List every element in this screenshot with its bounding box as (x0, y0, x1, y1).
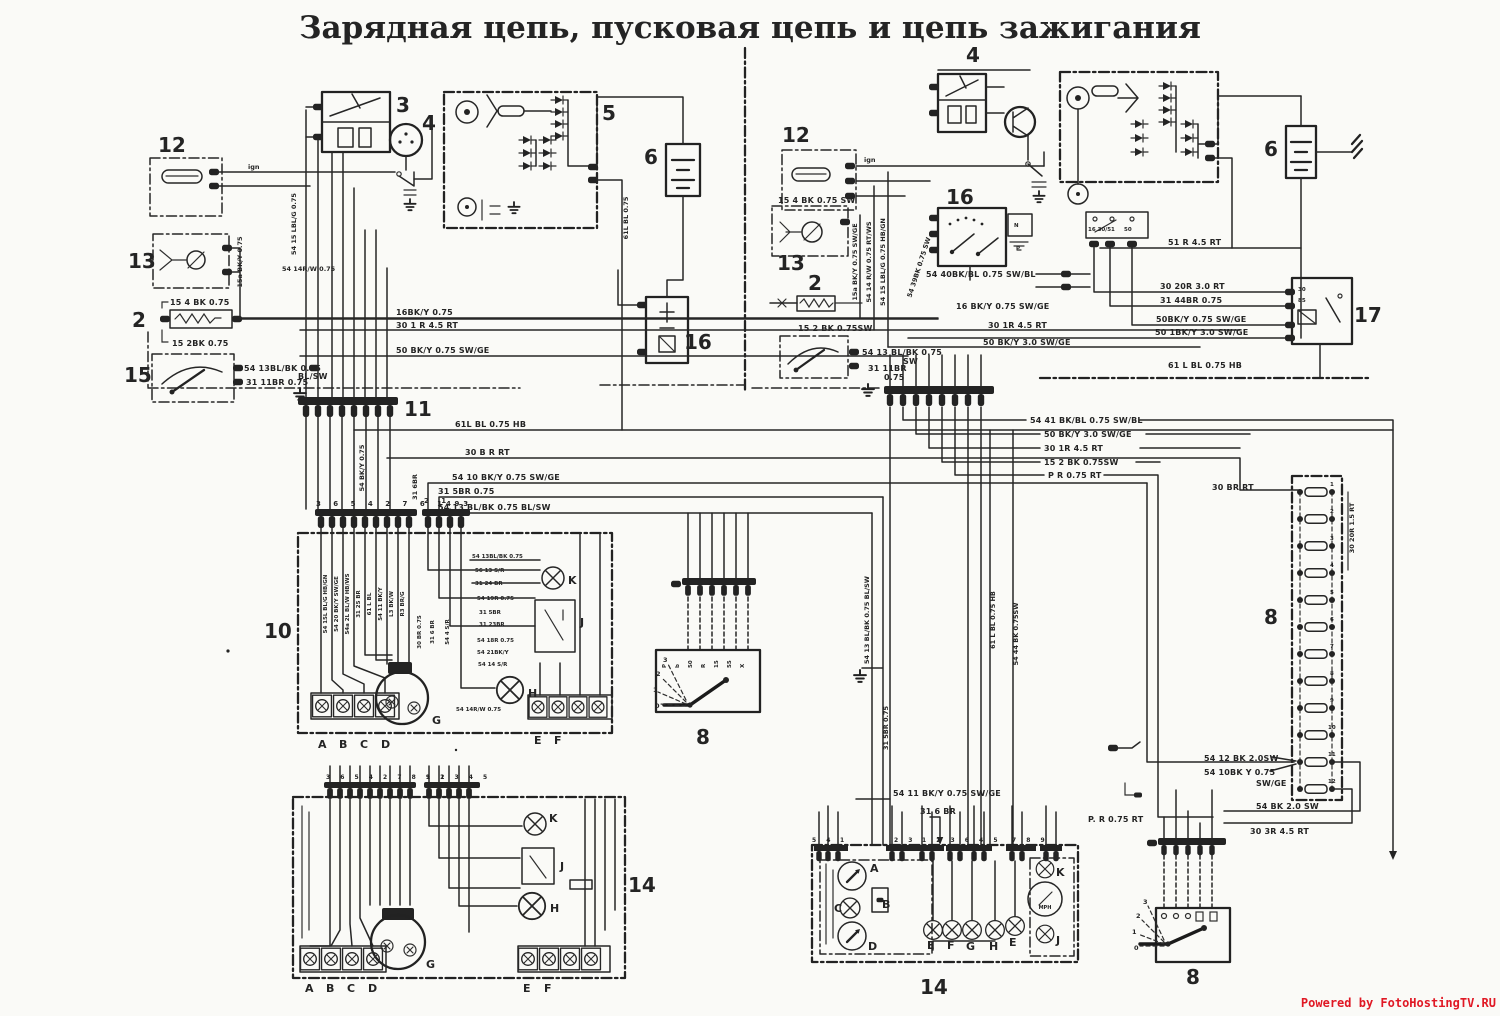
c10-w2: 56 13 S/R (475, 568, 505, 574)
wire-31-11-R: 31 11BR (868, 364, 907, 373)
c10-w1: 54 13BL/BK 0.75 (472, 554, 523, 560)
c10-v3: 54a 2L BL/W HB/WS (345, 573, 351, 634)
left-comp-5-alternator: 5 (444, 92, 616, 228)
fuse-9: 9 (1330, 698, 1334, 704)
sw8R-p2: 2 (1136, 912, 1141, 920)
c10-w4: 54 19R 0.75 (477, 596, 514, 602)
wire-16bky: 16BK/Y 0.75 (396, 308, 453, 317)
sw8L-t7: X (740, 663, 746, 668)
wire-31-11br: 31 11BR 0.75 (246, 378, 308, 387)
wire-15-2bk-R: 15 2 BK 0.75SW (798, 324, 872, 333)
c14L-tB: B (326, 982, 334, 995)
c10-tA: A (318, 738, 327, 751)
sw8L-t4: R (701, 663, 707, 668)
sw8R-p0: 0 (1134, 944, 1139, 952)
starter-t1: 16 30/51 (1088, 227, 1115, 233)
label-4R: 4 (966, 43, 980, 67)
c10-v5: 61 L BL (367, 592, 373, 615)
bus-54-10: 54 10 BK/Y 0.75 SW/GE (452, 473, 560, 482)
c14R-mph: MPH (1039, 905, 1052, 911)
c10-w3: 31 24 BR (475, 581, 503, 587)
label-2: 2 (132, 308, 146, 332)
label-17: 17 (1354, 303, 1382, 327)
c14R-D: D (868, 940, 877, 953)
wire-61-R: 61 L BL 0.75 HB (1168, 361, 1242, 370)
wire-50-075: 50BK/Y 0.75 SW/GE (1156, 315, 1246, 324)
left-comp-4-distributor: 4 (390, 111, 436, 210)
left-comp-8-ignition-switch: P b 50 R 15 55 X 3 2 1 0 8 (653, 513, 760, 749)
c14R-C: C (834, 902, 842, 915)
wire-30-1rb: 30 1R 4.5 RT (1044, 444, 1103, 453)
diagram-title: Зарядная цепь, пусковая цепь и цепь зажи… (299, 10, 1201, 46)
wire-61l-bl: 61L BL 0.75 (622, 196, 630, 239)
scan-dot (226, 649, 229, 652)
wire-15a-bky: 15a BK/Y 0.75 (236, 236, 244, 288)
c14R-H: H (989, 940, 998, 953)
wire-54-12bk: 54 12 BK 2.0SW (1204, 754, 1278, 763)
c10-m3: 54 4 S/R (445, 618, 451, 644)
wire-swge: SW/GE (1256, 779, 1287, 788)
label-6R: 6 (1264, 137, 1278, 161)
c10-w6: 31 23BR (479, 622, 505, 628)
c14R-E2: E (1009, 936, 1017, 949)
label-13: 13 (128, 249, 156, 273)
wire-v61: 61 L BL 0.75 HB (989, 591, 997, 649)
fuse-5: 5 (1330, 590, 1334, 596)
wire-54-14rw: 54 14R/W 0.75 (282, 265, 336, 273)
sw8L-p2: 2 (656, 670, 661, 678)
wire-54-14-R: 54 14 R/W 0.75 RT/WS (865, 221, 873, 302)
label-14L: 14 (628, 873, 656, 897)
wire-v31-5: 31 5BR 0.75 (882, 705, 890, 750)
wire-15-2bk: 15 2BK 0.75 (172, 339, 229, 348)
wire-54-15-lblg: 54 15 LBL/G 0.75 (290, 193, 298, 255)
c14L-tA: A (305, 982, 314, 995)
bus-30br: 30 B R RT (465, 448, 510, 457)
label-12: 12 (158, 133, 186, 157)
wire-30-20-15: 30 20R 1.5 RT (1348, 502, 1356, 553)
wire-pr: P R 0.75 RT (1048, 471, 1102, 480)
c10-v8: R3 BR/G (400, 591, 406, 616)
wire-v54-13: 54 13 BL/BK 0.75 BL/SW (863, 576, 871, 664)
c10-w10: 54 14R/W 0.75 (456, 707, 501, 713)
bus-31-5: 31 5BR 0.75 (438, 487, 495, 496)
c10-v2: 54 20 BK/Y SW/GE (334, 576, 340, 632)
fuse-4: 4 (1330, 563, 1334, 569)
wire-54-10bk: 54 10BK Y 0.75 (1204, 768, 1275, 777)
left-circuit: 12 ign 13 2 15 4 BK 0.75 15 2BK 0.75 (124, 92, 1393, 995)
sw8L-t5: 15 (714, 660, 720, 668)
wire-15-4bk-R: 15 4 BK 0.75 SW (778, 196, 855, 205)
c17-30: 30 (1298, 287, 1306, 293)
wire-54-41: 54 41 BK/BL 0.75 SW/BL (1030, 416, 1143, 425)
label-2R: 2 (808, 271, 822, 295)
c14R-A: A (870, 862, 879, 875)
bulb-K-icon (542, 567, 564, 589)
wire-54bk-20: 54 BK 2.0 SW (1256, 802, 1319, 811)
wire-30brrt: 30 BR RT (1212, 483, 1254, 492)
c10-v7: L3 BK/W (389, 591, 395, 617)
fuse-8: 8 (1330, 671, 1334, 677)
sw8L-p0: 0 (655, 702, 660, 710)
sw8L-t3: 50 (688, 660, 694, 668)
sw8L-p1: 1 (653, 686, 658, 694)
wire-31-6br-vert: 31 6BR (411, 474, 419, 500)
fuse-11: 11 (1328, 752, 1336, 758)
c10-tB: B (339, 738, 347, 751)
bulb-E1-icon (924, 921, 943, 940)
wiring-diagram-canvas: Зарядная цепь, пусковая цепь и цепь зажи… (0, 0, 1500, 1016)
c10-tE: E (534, 734, 542, 747)
fuse-1: 1 (1330, 482, 1334, 488)
wire-51r: 51 R 4.5 RT (1168, 238, 1222, 247)
c14L-K: K (549, 812, 558, 825)
c14L-tF: F (544, 982, 552, 995)
c10-w8: 54 21BK/Y (477, 650, 510, 656)
scan-dot (455, 749, 457, 751)
right-comp-8-ignition-switch: P. R 0.75 RT 3 2 1 0 8 (1088, 742, 1230, 989)
wire-v54-44: 54 44 BK 0.75SW (1012, 603, 1020, 666)
c14R-p3: 2 3 (894, 837, 916, 844)
c10-v4: 31 25 BR (356, 589, 362, 617)
c10-m2: 31 6 BR (430, 619, 436, 644)
wire-30-20r: 30 20R 3.0 RT (1160, 282, 1225, 291)
label-10: 10 (264, 619, 292, 643)
label-4: 4 (422, 111, 436, 135)
watermark: Powered by FotoHostingTV.RU (1301, 996, 1496, 1010)
left-comp-6-battery: 6 61L BL 0.75 (597, 97, 700, 430)
c14L-J: J (559, 860, 564, 873)
bulb-C-icon (840, 898, 860, 918)
right-comp-16-switch: 16 N P 54 40BK/BL 0.75 SW/BL 16 BK/Y 0.7… (888, 185, 1200, 347)
bulb-F-icon (943, 921, 962, 940)
wire-15a-R: 15a BK/Y 0.75 SW/GE (851, 223, 859, 300)
wire-ign-R: ign (864, 156, 876, 164)
gauge-A-icon (838, 862, 866, 890)
c10-tF: F (554, 734, 562, 747)
c16R-P: P (1016, 246, 1020, 252)
right-comp-4-coil: 4 (929, 43, 1046, 202)
c10-K: K (568, 574, 577, 587)
wire-075-R: 0.75 (884, 373, 905, 382)
right-comp-6-battery: 6 (1264, 96, 1362, 338)
c14R-G: G (966, 940, 975, 953)
c14L-G: G (426, 958, 435, 971)
label-3: 3 (396, 93, 410, 117)
c10-w9: 54 14 S/R (478, 662, 508, 668)
c17-85: 85 (1298, 298, 1306, 304)
wire-54-11: 54 11 BK/Y 0.75 SW/GE (893, 789, 1001, 798)
wire-50bk3b: 50 BK/Y 3.0 SW/GE (1044, 430, 1132, 439)
wire-30-1r-R: 30 1R 4.5 RT (988, 321, 1047, 330)
sw8L-t1: P (662, 664, 668, 668)
left-comp-3-ignition-coil: 3 (306, 92, 410, 152)
c10-v6: 54 11 BK/Y (378, 586, 384, 621)
label-8-center: 8 (696, 725, 710, 749)
bulb-H-icon (519, 893, 545, 919)
bus-61l: 61L BL 0.75 HB (455, 420, 526, 429)
sw8L-t6: 55 (727, 660, 733, 668)
bulb-H-icon (986, 921, 1005, 940)
bulb-J-icon (1036, 925, 1054, 943)
label-8-bottom: 8 (1186, 965, 1200, 989)
c10-pins-c: 4 3 (446, 500, 473, 508)
wire-pr2: P. R 0.75 RT (1088, 815, 1144, 824)
label-16: 16 (684, 330, 712, 354)
c14R-p1: 5 4 (812, 837, 834, 844)
c14R-p5: 7 8 9 (1012, 837, 1049, 844)
c10-tD: D (381, 738, 390, 751)
bulb-K-icon (524, 813, 546, 835)
wire-50bky: 50 BK/Y 0.75 SW/GE (396, 346, 489, 355)
gauge-D-icon (838, 922, 866, 950)
label-13R: 13 (777, 251, 805, 275)
label-5: 5 (602, 101, 616, 125)
label-12R: 12 (782, 123, 810, 147)
c14R-p2: 1 (840, 837, 848, 844)
c10-w5: 31 5BR (479, 610, 502, 616)
c14L-H: H (550, 902, 559, 915)
c10-m1: 30 BR 0.75 (417, 615, 423, 649)
starter-wires: 51 R 4.5 RT 30 20R 3.0 RT 31 44BR 0.75 5… (908, 238, 1301, 338)
wire-54-39-R: 54 39BK 0.75 SW (906, 236, 933, 298)
left-comp-16-relay: 16 (618, 270, 712, 363)
bulb-G-icon (963, 921, 982, 940)
sw8R-p1: 1 (1132, 928, 1137, 936)
starter-t2: 50 (1124, 227, 1132, 233)
right-comp-13: 13 15 4 BK 0.75 SW (772, 196, 855, 275)
label-16R: 16 (946, 185, 974, 209)
label-8-fusebox: 8 (1264, 605, 1278, 629)
sw8R-p3: 3 (1143, 898, 1148, 906)
c10-G: G (432, 714, 441, 727)
fuse-3: 3 (1330, 536, 1334, 542)
bulb-E2-icon (1006, 917, 1025, 936)
wire-54bky-vert: 54 BK/Y 0.75 (358, 444, 366, 491)
wire-54-15-R: 54 15 LBL/G 0.75 HB/GN (879, 218, 887, 306)
c10-v1: 54 15L BL/G HB/GN (323, 574, 329, 633)
sw8L-p3: 3 (663, 656, 668, 664)
wire-54-40-R: 54 40BK/BL 0.75 SW/BL (926, 270, 1036, 279)
bulb-K-icon (1036, 860, 1054, 878)
left-comp-10-instrument-cluster: 10 3 6 5 4 2 7 6 1 9 2 1 4 3 54 13BL/BK … (264, 497, 612, 751)
c10-w7: 54 18R 0.75 (477, 638, 514, 644)
c14R-B: B (882, 898, 890, 911)
fuse-10: 10 (1328, 725, 1336, 731)
scanned-wiring-diagram-page: Зарядная цепь, пусковая цепь и цепь зажи… (0, 0, 1500, 1016)
c14R-J: J (1055, 934, 1060, 947)
wire-15-4bk: 15 4 BK 0.75 (170, 298, 230, 307)
sw8L-t2: b (675, 664, 681, 668)
wire-ign: ign (248, 163, 260, 171)
fuse-6: 6 (1330, 617, 1334, 623)
left-comp-2-resistor: 2 15 4 BK 0.75 15 2BK 0.75 (132, 298, 938, 348)
c14L-tC: C (347, 982, 355, 995)
right-circuit: 12 ign 13 15 4 BK 0.75 SW 2 15 2 BK 0.75… (600, 43, 1397, 999)
right-comp-17-relay: 30 85 17 (1285, 278, 1382, 378)
c14R-p4: 1 2 3 6 4 5 (922, 837, 1002, 844)
bulb-H-icon (497, 677, 523, 703)
wire-15-2b: 15 2 BK 0.75SW (1044, 458, 1118, 467)
c14L-tD: D (368, 982, 377, 995)
wire-30-3r: 30 3R 4.5 RT (1250, 827, 1309, 836)
fuse-7: 7 (1330, 644, 1334, 650)
c10-tC: C (360, 738, 368, 751)
wire-50bk3-R: 50 BK/Y 3.0 SW/GE (983, 338, 1071, 347)
label-11: 11 (404, 397, 432, 421)
right-fuse-box-8: 8 1 2 3 4 5 6 7 8 9 10 11 12 30 BR RT 30… (1204, 476, 1360, 836)
fuse-12: 12 (1328, 779, 1336, 785)
wire-54-13-R: 54 13 BL/BK 0.75 (862, 348, 942, 357)
label-6: 6 (644, 145, 658, 169)
right-comp-14-cluster: 14 5 4 1 2 3 1 2 3 6 4 5 7 8 9 A B C (812, 806, 1078, 999)
wire-30-1r: 30 1 R 4.5 RT (396, 321, 458, 330)
c14R-K: K (1056, 866, 1065, 879)
c14L-tE: E (523, 982, 531, 995)
c16R-N: N (1014, 223, 1019, 229)
fuse-2: 2 (1330, 509, 1334, 515)
label-14R: 14 (920, 975, 948, 999)
wire-31-44: 31 44BR 0.75 (1160, 296, 1222, 305)
left-comp-14-cluster: 14 3 6 5 4 2 7 8 9 1 1 2 3 4 5 K J H (293, 766, 656, 995)
wire-16bk-R: 16 BK/Y 0.75 SW/GE (956, 302, 1049, 311)
wire-50-130: 50 1BK/Y 3.0 SW/GE (1155, 328, 1248, 337)
